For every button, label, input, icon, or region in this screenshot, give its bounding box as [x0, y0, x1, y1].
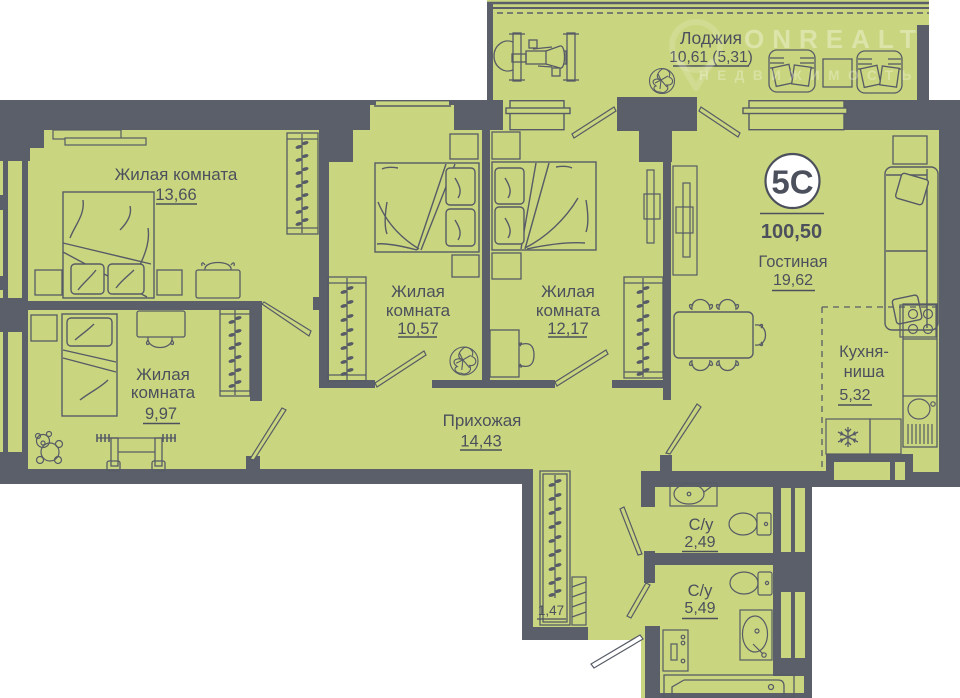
- svg-text:13,66: 13,66: [155, 186, 196, 204]
- svg-text:ниша: ниша: [844, 363, 886, 381]
- svg-text:5,49: 5,49: [684, 600, 715, 617]
- svg-text:12,17: 12,17: [547, 320, 588, 338]
- svg-text:100,50: 100,50: [761, 221, 822, 243]
- svg-text:НЕДВИЖИМОСТЬ: НЕДВИЖИМОСТЬ: [699, 68, 920, 83]
- svg-text:С/у: С/у: [689, 516, 715, 534]
- svg-text:5С: 5С: [771, 164, 813, 201]
- svg-text:10,57: 10,57: [397, 320, 438, 338]
- svg-text:Жилая комната: Жилая комната: [115, 165, 238, 184]
- svg-text:19,62: 19,62: [773, 272, 813, 289]
- svg-text:Жилая: Жилая: [136, 365, 190, 384]
- svg-text:Кухня-: Кухня-: [839, 343, 889, 361]
- svg-text:9,97: 9,97: [145, 405, 177, 423]
- svg-text:Жилая: Жилая: [541, 282, 595, 301]
- svg-text:комната: комната: [536, 301, 601, 320]
- svg-text:С/у: С/у: [688, 582, 714, 600]
- svg-text:Жилая: Жилая: [391, 282, 445, 301]
- svg-text:ONREALT: ONREALT: [744, 24, 924, 54]
- svg-text:5,32: 5,32: [839, 387, 870, 404]
- svg-text:1,47: 1,47: [538, 603, 564, 618]
- svg-text:Прихожая: Прихожая: [443, 411, 522, 430]
- svg-text:2,49: 2,49: [684, 534, 715, 551]
- svg-text:комната: комната: [386, 301, 451, 320]
- svg-text:Гостиная: Гостиная: [758, 253, 827, 271]
- svg-text:комната: комната: [131, 383, 196, 402]
- svg-text:14,43: 14,43: [460, 433, 501, 451]
